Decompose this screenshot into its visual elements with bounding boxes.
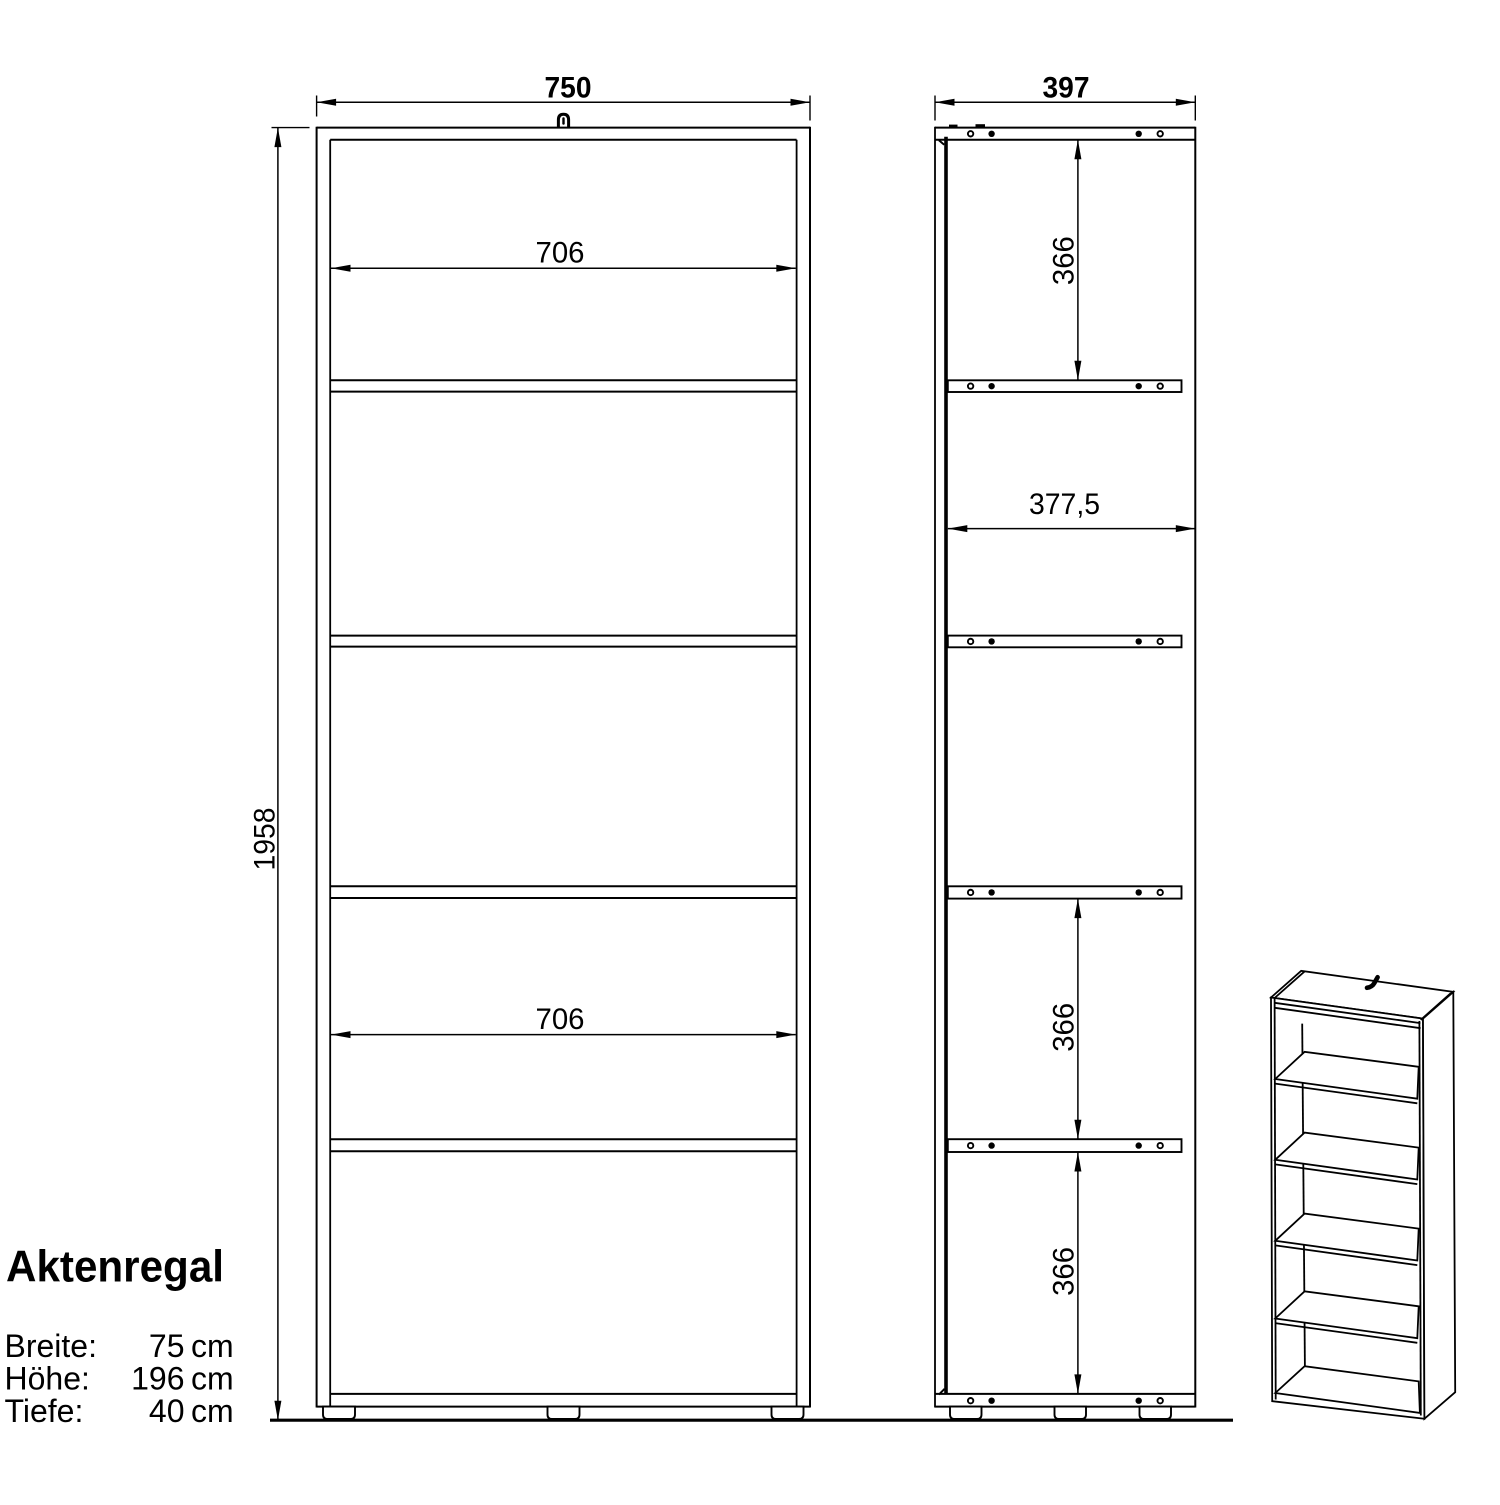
- svg-text:397: 397: [1043, 71, 1090, 104]
- svg-text:40: 40: [149, 1393, 185, 1429]
- svg-text:75: 75: [149, 1328, 185, 1364]
- svg-text:706: 706: [536, 1003, 585, 1036]
- svg-text:750: 750: [545, 71, 592, 104]
- svg-text:377,5: 377,5: [1029, 488, 1100, 521]
- svg-text:Tiefe:: Tiefe:: [5, 1393, 84, 1429]
- svg-text:Höhe:: Höhe:: [5, 1361, 90, 1397]
- svg-text:cm: cm: [191, 1328, 234, 1364]
- svg-text:cm: cm: [191, 1393, 234, 1429]
- svg-text:Aktenregal: Aktenregal: [6, 1243, 224, 1292]
- svg-text:366: 366: [1048, 236, 1081, 285]
- svg-text:366: 366: [1048, 1003, 1081, 1052]
- svg-text:706: 706: [536, 237, 585, 270]
- svg-text:196: 196: [131, 1361, 184, 1397]
- svg-text:Breite:: Breite:: [5, 1328, 97, 1364]
- svg-text:cm: cm: [191, 1361, 234, 1397]
- svg-text:366: 366: [1048, 1247, 1081, 1296]
- svg-text:1958: 1958: [249, 808, 282, 871]
